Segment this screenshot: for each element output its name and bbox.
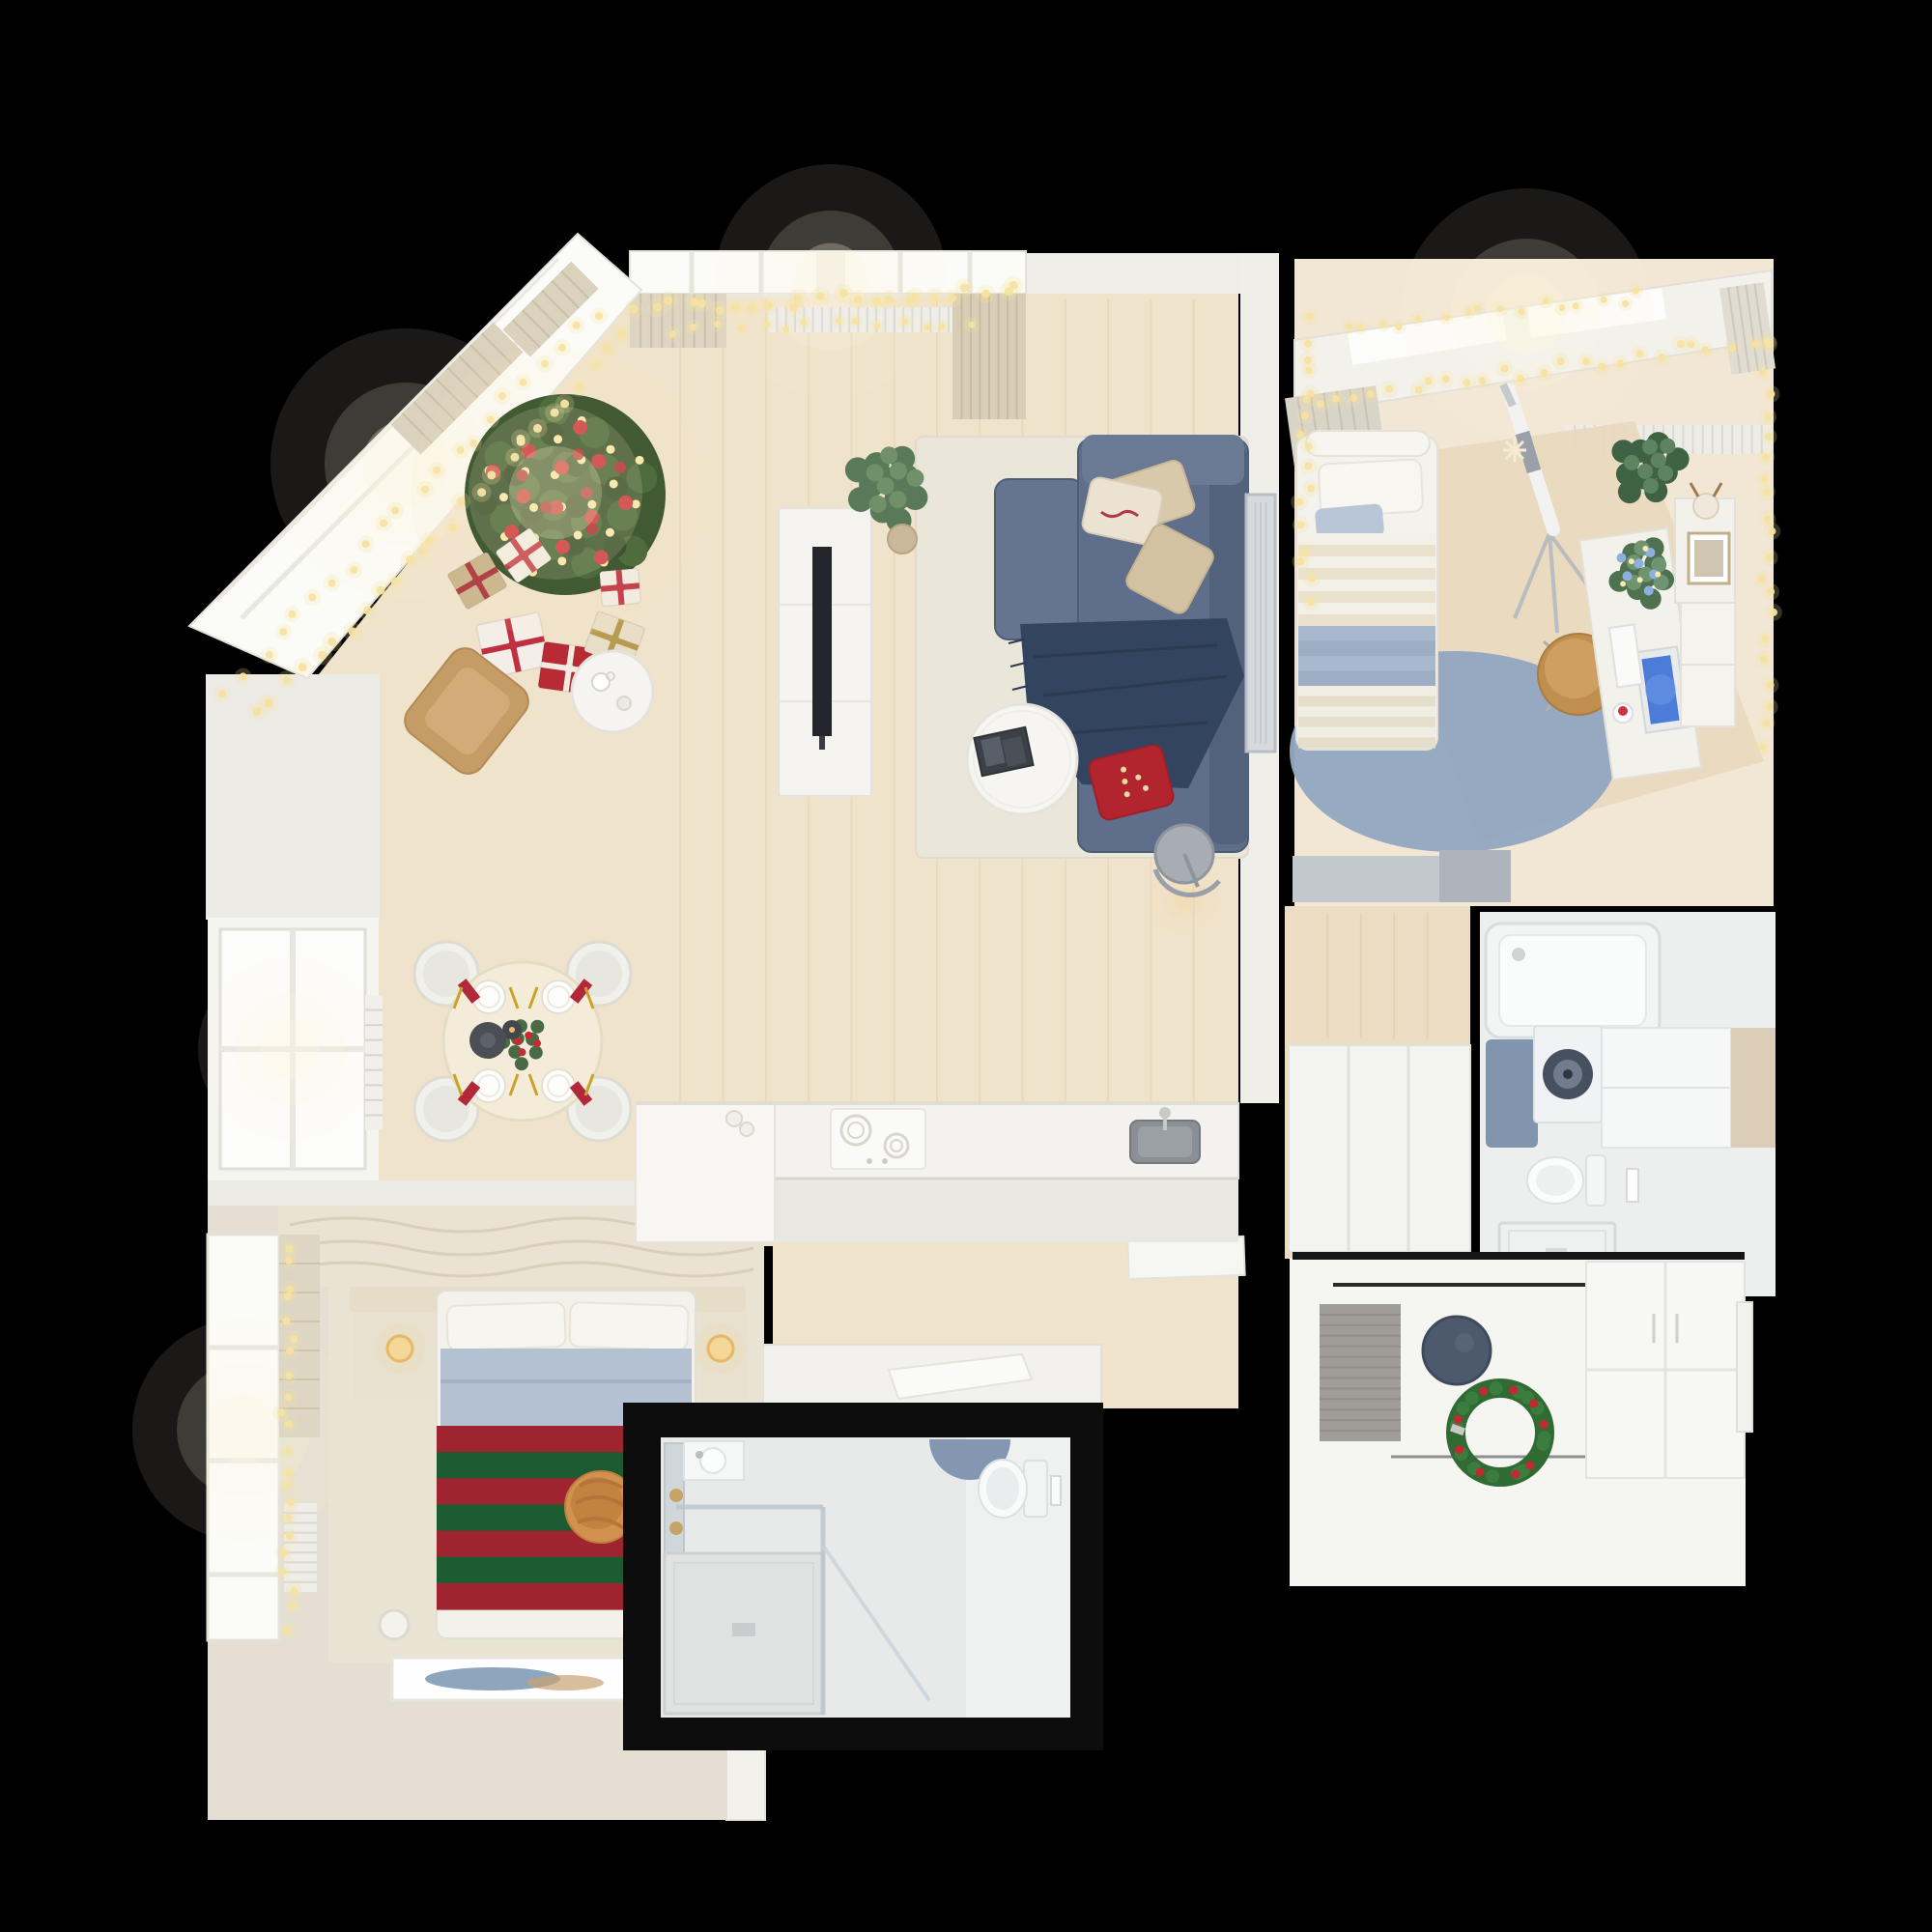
potted-plant-pot xyxy=(888,525,917,554)
toilet-main-seat xyxy=(1536,1165,1575,1196)
bath-cabinet-wood xyxy=(1731,1028,1776,1148)
bath2-shower-drain xyxy=(732,1623,755,1636)
side-table xyxy=(572,651,653,732)
entry-door xyxy=(1737,1302,1752,1432)
bath2-mirror xyxy=(665,1443,684,1561)
wall-west-top xyxy=(206,674,380,920)
bath2-hook-1 xyxy=(669,1489,683,1502)
corridor-wardrobe xyxy=(1289,1045,1470,1252)
reindeer-figurine xyxy=(1693,494,1719,519)
kitchen-faucet xyxy=(1159,1107,1171,1119)
office-bed-headboard xyxy=(1306,431,1430,456)
bath2-faucet xyxy=(696,1451,703,1459)
bath2-flush-plate xyxy=(1051,1476,1061,1505)
pendant-lamp-top xyxy=(480,1033,496,1048)
wall-top-right-of-window xyxy=(1026,253,1240,294)
render-stage xyxy=(0,0,1932,1932)
round-pouf xyxy=(1423,1317,1491,1384)
sconce-right xyxy=(708,1336,733,1361)
dining-radiator xyxy=(365,995,383,1130)
bath2-basin xyxy=(700,1448,725,1473)
master-artwork-sand xyxy=(526,1675,604,1690)
office-picture-art xyxy=(1694,540,1723,577)
living-curtain-right xyxy=(952,294,1026,419)
sofa-chaise xyxy=(995,479,1084,639)
pepper-shaker xyxy=(740,1122,753,1136)
office-bed-duvet-blue-band xyxy=(1298,626,1435,687)
cooktop-knob-1 xyxy=(867,1158,872,1164)
master-pillow-right xyxy=(569,1302,689,1350)
doormat xyxy=(1320,1304,1401,1441)
toilet-main-tank xyxy=(1586,1155,1605,1206)
bath2-toilet-seat xyxy=(986,1467,1019,1510)
apartment-floorplan-render xyxy=(0,0,1932,1932)
wall-shelf xyxy=(1127,1236,1244,1279)
bath-mat-blue xyxy=(1486,1039,1538,1148)
master-window-glow xyxy=(132,1319,355,1541)
kitchen-bar-section xyxy=(636,1103,775,1242)
bath2-hook-2 xyxy=(669,1521,683,1535)
cooktop-knob-2 xyxy=(882,1158,888,1164)
tv-screen xyxy=(812,547,832,736)
side-table-cup-2 xyxy=(617,696,631,710)
washing-machine-dot xyxy=(1563,1069,1573,1079)
round-pouf-highlight xyxy=(1455,1333,1474,1352)
sconce-left xyxy=(387,1336,412,1361)
living-window-glow xyxy=(715,164,947,396)
desk-mug-candy-cane xyxy=(1618,706,1628,716)
master-pillow-left xyxy=(446,1302,566,1350)
centerpiece-candle-flame xyxy=(509,1027,515,1033)
kitchen-sink-basin xyxy=(1138,1126,1192,1157)
desk-monitor-glow xyxy=(1645,674,1676,705)
dining-bay-glow xyxy=(198,957,382,1141)
office-bench xyxy=(1293,856,1439,902)
tree-area-glow xyxy=(411,348,700,638)
office-bench-2 xyxy=(1439,850,1511,902)
bathtub-drain xyxy=(1512,948,1525,961)
salt-shaker xyxy=(726,1111,742,1126)
office-bed-duvet-bottom xyxy=(1298,686,1435,749)
master-footlamp-left xyxy=(380,1610,409,1639)
light-switch xyxy=(1627,1169,1638,1202)
